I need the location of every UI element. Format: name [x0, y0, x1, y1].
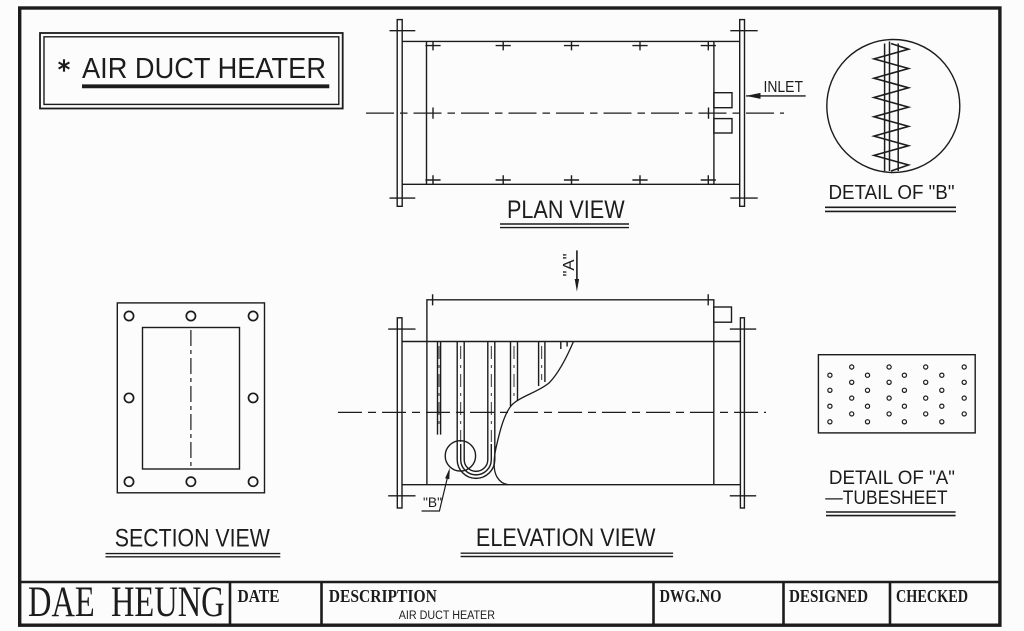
svg-text:AIR DUCT HEATER: AIR DUCT HEATER: [82, 53, 326, 85]
svg-text:CHECKED: CHECKED: [896, 586, 968, 606]
svg-text:SECTION VIEW: SECTION VIEW: [115, 526, 271, 553]
svg-text:DWG.NO: DWG.NO: [660, 586, 722, 606]
svg-text:AIR DUCT HEATER: AIR DUCT HEATER: [399, 610, 495, 622]
svg-text:"B": "B": [423, 494, 442, 510]
svg-text:DETAIL OF "A": DETAIL OF "A": [829, 467, 955, 489]
svg-text:—TUBESHEET: —TUBESHEET: [825, 487, 947, 509]
svg-text:INLET: INLET: [764, 79, 804, 96]
svg-text:DESIGNED: DESIGNED: [789, 586, 868, 606]
svg-text:DETAIL OF "B": DETAIL OF "B": [829, 181, 955, 204]
svg-text:DATE: DATE: [238, 586, 280, 606]
svg-text:"A": "A": [561, 254, 578, 277]
svg-text:DESCRIPTION: DESCRIPTION: [329, 586, 437, 606]
svg-text:DAE HEUNG: DAE HEUNG: [28, 579, 225, 626]
svg-text:PLAN VIEW: PLAN VIEW: [507, 197, 625, 224]
svg-text:ELEVATION VIEW: ELEVATION VIEW: [476, 525, 656, 552]
